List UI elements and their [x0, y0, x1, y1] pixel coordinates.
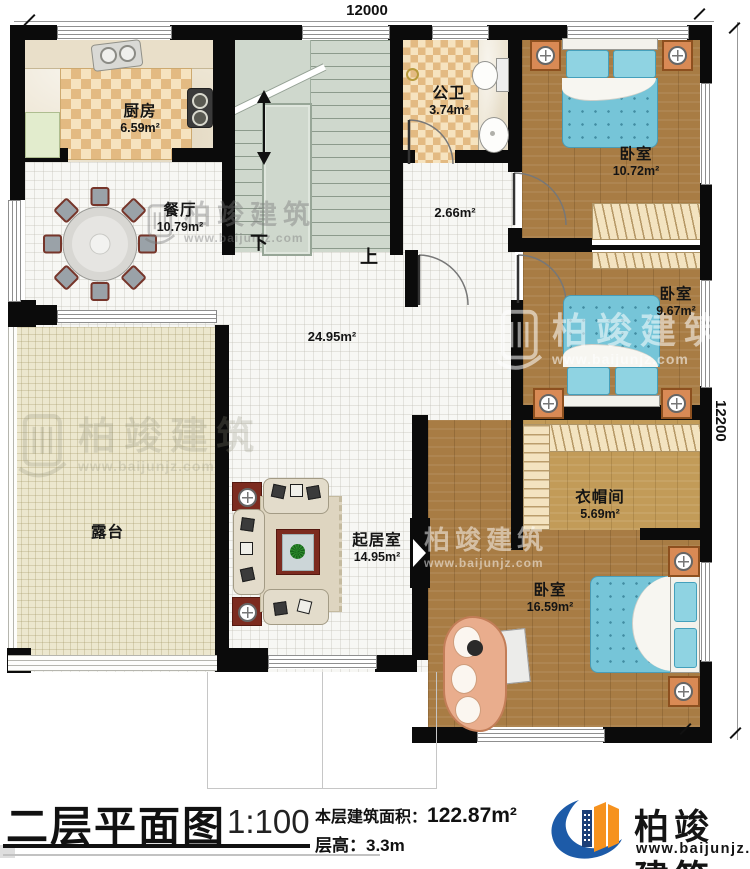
terrace-slider-window	[57, 310, 217, 323]
room-name: 卧室	[603, 146, 669, 164]
room-label-bath: 公卫 3.74m²	[418, 85, 480, 117]
lamp-icon	[667, 394, 686, 413]
cushion	[455, 696, 481, 724]
wall-segment	[511, 420, 523, 550]
room-area: 9.67m²	[643, 304, 709, 318]
pocket-door-arrow-icon	[413, 539, 426, 567]
nightstand	[668, 546, 700, 577]
room-label-hall: 24.95m²	[298, 330, 366, 345]
window	[701, 562, 712, 662]
floor-height-line: 层高：3.3m	[315, 831, 405, 856]
dimension-line-right	[737, 22, 738, 740]
wall-segment	[412, 415, 428, 520]
terrace-floor	[14, 327, 215, 655]
bedroom-top-door	[510, 170, 568, 228]
cushion	[306, 485, 321, 500]
lamp-icon	[539, 394, 558, 413]
lamp-icon	[674, 552, 693, 571]
wall-segment	[170, 25, 302, 40]
bedroom-mid-closet	[592, 252, 702, 269]
wall-segment	[10, 305, 57, 325]
stair-direction-line	[263, 100, 265, 158]
wall-segment	[172, 148, 222, 162]
wall-segment	[215, 325, 229, 672]
wall-segment	[508, 238, 592, 252]
window	[302, 26, 390, 39]
room-area: 10.72m²	[603, 164, 669, 178]
cushion	[271, 484, 286, 499]
floor-area-label: 本层建筑面积：	[315, 803, 427, 827]
bed	[562, 38, 658, 148]
wall-segment	[390, 25, 403, 255]
sofa-set	[228, 476, 344, 628]
headboard	[563, 395, 660, 407]
bedroom-top-closet	[592, 203, 702, 240]
towel-ring-icon	[406, 68, 419, 81]
lamp-icon	[536, 46, 555, 65]
lower-floor-outline	[207, 672, 437, 789]
stair-arrow-down-icon	[257, 152, 271, 165]
room-label-living: 起居室 14.95m²	[343, 532, 411, 564]
bedroom-mid-door	[514, 252, 568, 306]
room-area: 5.69m²	[570, 507, 630, 521]
burner-icon	[192, 93, 208, 109]
window	[701, 83, 712, 185]
stair-down-label: 下	[250, 229, 268, 255]
wall-segment	[592, 245, 700, 250]
wall-segment	[215, 648, 268, 672]
brand-name: 柏竣建筑	[634, 799, 750, 869]
pillow	[566, 50, 609, 78]
vestibule-door	[416, 252, 470, 308]
lamp-icon	[674, 682, 693, 701]
pillow	[613, 50, 656, 78]
wall-segment	[412, 588, 428, 660]
floor-area-line: 本层建筑面积： 122.87m²	[315, 803, 517, 828]
room-name: 公卫	[418, 85, 480, 103]
pillow	[674, 628, 697, 668]
side-table	[232, 597, 262, 626]
wall-segment	[511, 300, 523, 420]
dimension-right: 12200	[712, 386, 729, 456]
room-label-hall-small: 2.66m²	[421, 206, 489, 221]
room-name: 衣帽间	[570, 489, 630, 507]
wall-segment	[487, 25, 567, 40]
room-name: 厨房	[95, 103, 185, 121]
person-icon	[467, 640, 483, 656]
room-name: 卧室	[643, 286, 709, 304]
window	[8, 200, 21, 302]
brand-logo-icon	[546, 797, 632, 861]
lamp-icon	[238, 603, 257, 622]
headboard	[562, 38, 658, 50]
sofa	[263, 589, 329, 625]
floor-height-value: 层高：3.3m	[315, 831, 405, 856]
nightstand	[661, 388, 692, 419]
cushion	[451, 664, 477, 694]
wall-segment	[375, 655, 417, 672]
fridge	[25, 112, 60, 158]
window	[432, 26, 489, 39]
cushion	[240, 567, 255, 582]
room-label-bedroom-master: 卧室 16.59m²	[517, 582, 583, 614]
drawing-scale: 1:100	[227, 803, 310, 841]
window	[268, 655, 377, 669]
bed	[590, 576, 700, 673]
chaise-lounge	[443, 616, 507, 732]
sink-bowl-icon	[100, 47, 117, 64]
room-area: 24.95m²	[308, 329, 356, 344]
window	[477, 729, 605, 742]
wall-segment	[10, 25, 25, 200]
room-label-bedroom-top: 卧室 10.72m²	[603, 146, 669, 178]
lamp-icon	[238, 488, 257, 507]
stair-arrow-up-icon	[257, 90, 271, 103]
brand-url: www.baijunjz.com	[636, 841, 750, 857]
cushion	[297, 599, 313, 615]
room-name: 起居室	[343, 532, 411, 550]
cloakroom-hanger-rail	[548, 424, 702, 452]
dimension-tick	[693, 8, 705, 20]
title-underline	[3, 844, 310, 848]
plant-icon	[290, 544, 305, 559]
burner-icon	[192, 110, 208, 126]
pillow	[674, 582, 697, 622]
wall-segment	[640, 528, 700, 540]
room-name: 露台	[80, 524, 135, 542]
nightstand	[662, 40, 693, 71]
nightstand	[530, 40, 561, 71]
cushion	[240, 517, 255, 532]
pillow	[567, 367, 610, 395]
room-area: 2.66m²	[434, 205, 475, 220]
cushion	[240, 542, 253, 555]
nightstand	[668, 676, 700, 707]
room-name: 餐厅	[130, 202, 230, 220]
coffee-table	[276, 529, 320, 575]
sofa	[263, 478, 329, 514]
window	[57, 26, 172, 39]
side-table	[232, 482, 262, 511]
wall-segment	[603, 727, 712, 743]
cloakroom-shelf	[523, 424, 550, 530]
room-area: 16.59m²	[517, 600, 583, 614]
room-label-terrace: 露台	[80, 524, 135, 542]
nightstand	[533, 388, 564, 419]
bathroom-door	[405, 117, 463, 167]
lower-floor-divider	[322, 672, 323, 788]
room-label-cloakroom: 衣帽间 5.69m²	[570, 489, 630, 521]
terrace-parapet	[8, 655, 217, 671]
room-area: 14.95m²	[343, 550, 411, 564]
room-area: 10.79m²	[130, 220, 230, 234]
room-label-bedroom-mid: 卧室 9.67m²	[643, 286, 709, 318]
wall-segment	[700, 183, 712, 280]
floor-area-value: 122.87m²	[427, 804, 517, 828]
lamp-icon	[668, 46, 687, 65]
room-area: 6.59m²	[95, 121, 185, 135]
dimension-line-top	[14, 21, 714, 22]
sofa	[233, 509, 265, 595]
wall-segment	[700, 25, 712, 83]
drain-icon	[490, 131, 495, 136]
stair-stringer	[262, 103, 312, 256]
dimension-tick	[729, 727, 741, 739]
dimension-top: 12000	[307, 2, 427, 19]
dimension-tick	[728, 22, 740, 34]
pillow	[615, 367, 658, 395]
room-area: 3.74m²	[418, 103, 480, 117]
room-label-dining: 餐厅 10.79m²	[130, 202, 230, 234]
stair-up-label: 上	[360, 243, 378, 269]
floor-plan-page: 柏竣建筑 www.baijunjz.com 柏竣建筑 www.baijunjz.…	[0, 0, 750, 869]
sink-bowl-icon	[119, 45, 136, 62]
terrace-parapet	[8, 327, 17, 648]
room-label-kitchen: 厨房 6.59m²	[95, 103, 185, 135]
room-name: 卧室	[517, 582, 583, 600]
wall-segment	[508, 25, 522, 172]
cushion	[273, 601, 288, 616]
cushion	[290, 484, 303, 497]
